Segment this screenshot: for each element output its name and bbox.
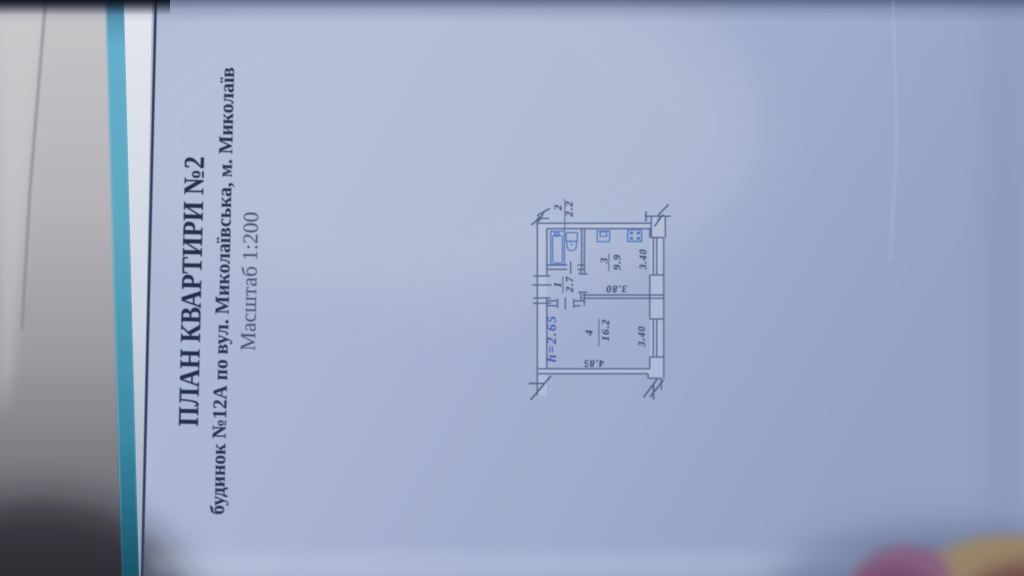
svg-text:2.7: 2.7 <box>564 276 576 293</box>
svg-text:3.80: 3.80 <box>605 283 628 294</box>
svg-text:3.40: 3.40 <box>637 326 648 348</box>
svg-text:3.40: 3.40 <box>638 249 649 271</box>
svg-text:h=2.65: h=2.65 <box>545 315 560 362</box>
svg-text:Масштаб 1:200: Масштаб 1:200 <box>236 211 263 351</box>
svg-text:3: 3 <box>598 257 610 264</box>
svg-text:4.85: 4.85 <box>583 357 605 368</box>
svg-text:4: 4 <box>583 330 595 337</box>
svg-text:9.9: 9.9 <box>612 254 624 270</box>
svg-text:1: 1 <box>552 282 564 288</box>
svg-text:2.2: 2.2 <box>564 200 576 217</box>
svg-text:16.2: 16.2 <box>600 319 612 341</box>
svg-text:ПЛАН КВАРТИРИ №2: ПЛАН КВАРТИРИ №2 <box>173 156 211 427</box>
